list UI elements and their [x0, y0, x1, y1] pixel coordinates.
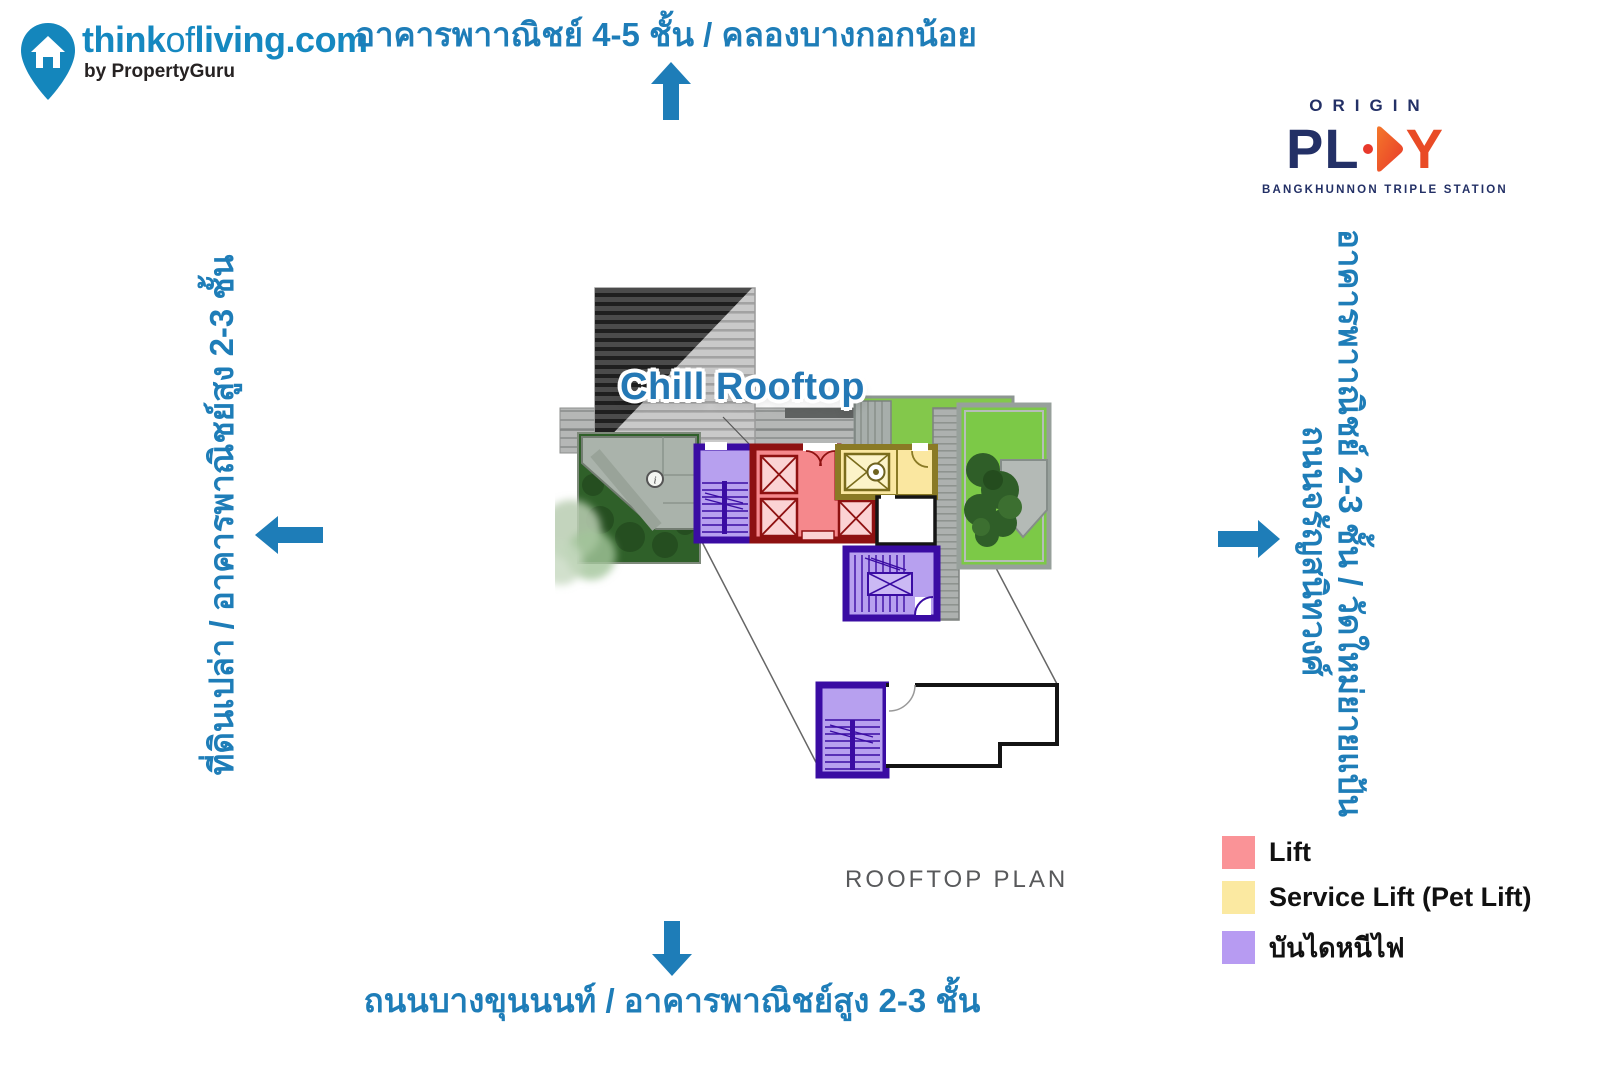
origin-play-logo: ORIGIN PL Y BANGKHUNNON TRIPLE STATION — [1262, 96, 1467, 196]
site-byline: by PropertyGuru — [84, 61, 368, 83]
play-y-letter: Y — [1406, 121, 1443, 177]
origin-play-subtitle: BANGKHUNNON TRIPLE STATION — [1262, 184, 1467, 196]
south-surroundings-label: ถนนบางขุนนนท์ / อาคารพาณิชย์สูง 2-3 ชั้น — [364, 982, 981, 1020]
west-arrow-icon — [255, 516, 323, 554]
fire-stair-room-1 — [697, 442, 753, 540]
south-arrow-icon — [652, 921, 692, 976]
north-surroundings-label: อาคารพาาณิชย์ 4-5 ชั้น / คลองบางกอกน้อย — [355, 16, 977, 54]
fire-stair-color-swatch — [1222, 931, 1255, 964]
play-triangle-icon — [1361, 123, 1405, 175]
service-lift-room — [838, 443, 935, 497]
lift-color-swatch — [1222, 836, 1255, 869]
service-lift-color-swatch — [1222, 881, 1255, 914]
info-marker-letter: i — [653, 475, 656, 487]
legend-label-fire-stair: บันไดหนีไฟ — [1269, 926, 1405, 969]
plan-area-label: Chill Rooftop — [620, 366, 865, 409]
east-surroundings-label-line2: ถนนจรัญสนิทวงศ์ — [1295, 426, 1333, 676]
right-garden — [959, 405, 1049, 567]
legend-item-lift: Lift — [1222, 836, 1532, 869]
fire-stair-room-3 — [819, 685, 886, 775]
plan-caption: ROOFTOP PLAN — [845, 866, 1068, 894]
north-arrow-icon — [651, 62, 691, 120]
rooftop-floor-plan: i — [555, 275, 1065, 780]
thinkofliving-logo: thinkofliving.com by PropertyGuru — [20, 22, 368, 102]
house-pin-icon — [20, 22, 76, 102]
east-surroundings-label-line1: อาคารพาาณิชย์ 2-3 ชั้น / วัดใหม่ยายแป้น — [1331, 229, 1369, 817]
west-surroundings-label: ที่ดินเปล่า / อาคารพาณิชย์สูง 2-3 ชั้น — [203, 255, 241, 776]
site-title: thinkofliving.com — [82, 22, 368, 58]
legend-item-fire-stair: บันไดหนีไฟ — [1222, 926, 1532, 969]
fire-stair-room-2 — [846, 549, 937, 618]
utility-room — [877, 495, 935, 544]
legend-label-lift: Lift — [1269, 837, 1311, 868]
lower-floor-outline — [886, 681, 1057, 766]
legend: Lift Service Lift (Pet Lift) บันไดหนีไฟ — [1222, 836, 1532, 969]
legend-item-service-lift: Service Lift (Pet Lift) — [1222, 881, 1532, 914]
left-garden-terrace: i — [555, 433, 700, 585]
east-arrow-icon — [1218, 520, 1280, 558]
play-pl-letters: PL — [1286, 121, 1360, 177]
origin-wordmark: ORIGIN — [1272, 96, 1467, 116]
legend-label-service-lift: Service Lift (Pet Lift) — [1269, 882, 1532, 913]
